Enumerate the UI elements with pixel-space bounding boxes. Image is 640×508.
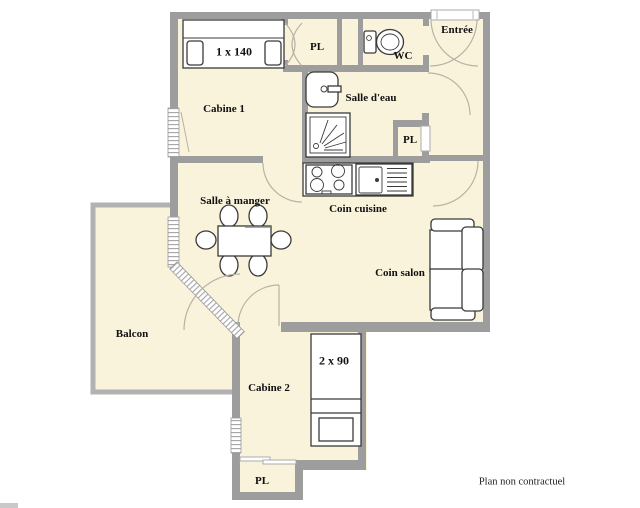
window-cabine1	[168, 108, 179, 157]
room-label-balcon: Balcon	[116, 328, 148, 340]
sofa	[430, 219, 483, 320]
window-dining	[168, 217, 179, 267]
room-label-wc: WC	[394, 50, 413, 62]
room-label-cabine1: Cabine 1	[203, 103, 245, 115]
shower	[306, 113, 350, 157]
corridor-closet-door	[421, 126, 430, 151]
room-label-salle-a-manger: Salle à manger	[200, 195, 270, 207]
bed-double-label: 1 x 140	[216, 45, 252, 60]
window-cabine2	[231, 418, 241, 453]
front-door	[431, 10, 479, 20]
bed-bunk	[311, 334, 361, 446]
room-label-entree: Entrée	[441, 24, 473, 36]
scrollbar-fragment	[0, 503, 18, 508]
kitchen-counter	[303, 163, 413, 196]
room-label-salle-eau: Salle d'eau	[345, 92, 396, 104]
room-label-pl-top: PL	[310, 41, 324, 53]
room-label-coin-salon: Coin salon	[375, 267, 425, 279]
floor-plan-drawing	[0, 0, 640, 508]
washbasin	[306, 72, 341, 107]
closet-slide-door-b	[263, 460, 296, 464]
room-label-coin-cuisine: Coin cuisine	[329, 203, 387, 215]
room-label-pl-corridor: PL	[403, 134, 417, 146]
bed-bunk-label: 2 x 90	[319, 354, 349, 369]
plan-disclaimer: Plan non contractuel	[479, 477, 565, 488]
floor-plan-canvas: 1 x 140 PL WC Entrée Cabine 1 Salle d'ea…	[0, 0, 640, 508]
room-label-cabine2: Cabine 2	[248, 382, 290, 394]
room-label-pl-bottom: PL	[255, 475, 269, 487]
